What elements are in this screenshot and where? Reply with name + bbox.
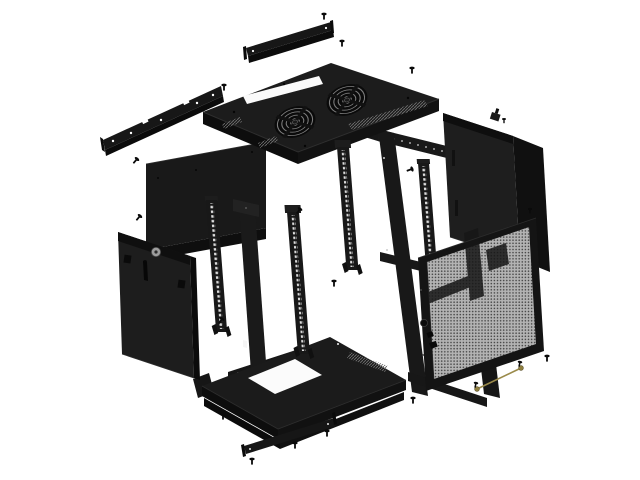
panel-cutout <box>123 255 131 264</box>
panel-cutout <box>177 280 185 289</box>
rack-rail <box>332 140 362 275</box>
rear-panel-hole <box>251 151 253 153</box>
screw-icon <box>324 430 329 437</box>
screw-icon <box>131 156 140 165</box>
exploded-diagram <box>0 0 640 480</box>
screw-icon <box>502 118 506 123</box>
screw-icon <box>339 40 344 47</box>
bottom-strip-hole <box>249 448 251 450</box>
screw-icon <box>544 355 549 362</box>
perforated-door <box>418 218 544 391</box>
base-hole <box>337 343 339 345</box>
bottom-strip-hole <box>327 423 329 425</box>
screw-icon <box>249 458 254 465</box>
right-panel-slot <box>452 150 455 166</box>
rear-panel-hole <box>157 177 159 179</box>
diagram-canvas <box>0 0 640 480</box>
corner-post-screw-hole <box>245 207 247 209</box>
screw-icon <box>409 67 414 74</box>
top-strip-hole <box>325 27 327 29</box>
screw-icon <box>292 442 297 449</box>
panel-lock-core <box>154 250 157 253</box>
right-panel-slot <box>455 200 458 216</box>
rear-panel-hole <box>195 169 197 171</box>
screw-icon <box>321 13 326 20</box>
door-lock <box>420 319 427 326</box>
screw-icon <box>331 280 336 287</box>
corner-post-slot <box>243 340 247 348</box>
screw-icon <box>134 213 143 222</box>
bracket-flange <box>105 96 224 156</box>
frame-hole <box>383 157 385 159</box>
door-hinge-hole <box>422 354 424 356</box>
right-panel-latch <box>490 107 502 121</box>
top-blanking-strip <box>243 20 334 63</box>
screw-icon <box>406 166 414 173</box>
screw-icon <box>410 397 415 404</box>
top-strip-hole <box>252 50 254 52</box>
frame-hole <box>386 249 388 251</box>
screw-icon <box>221 84 226 91</box>
door-hinge-hole <box>420 289 422 291</box>
rack-rail <box>282 205 314 359</box>
left-side-panel <box>118 232 200 380</box>
